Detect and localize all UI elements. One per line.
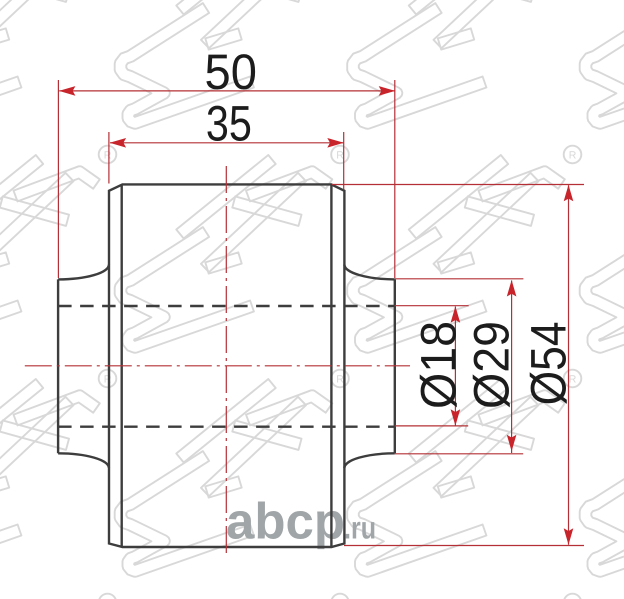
svg-text:Ø18: Ø18 (410, 321, 466, 409)
svg-text:50: 50 (205, 44, 257, 100)
svg-text:.ru: .ru (344, 511, 376, 546)
svg-text:abcp: abcp (226, 493, 345, 550)
svg-text:Ø54: Ø54 (520, 321, 576, 405)
svg-text:35: 35 (206, 96, 252, 152)
svg-text:Ø29: Ø29 (463, 321, 519, 409)
